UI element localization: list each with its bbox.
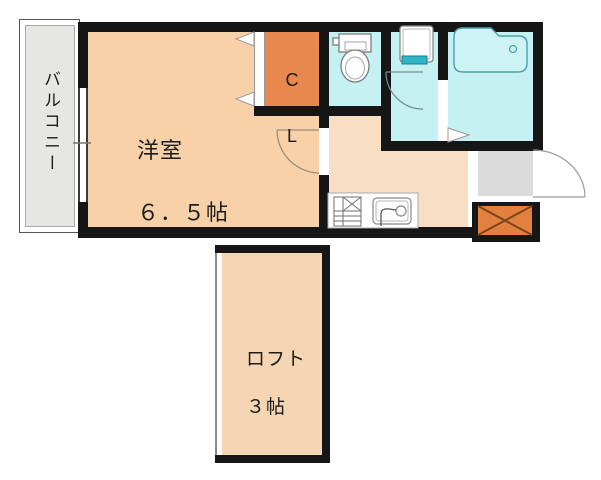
closet-label: C L bbox=[265, 38, 319, 178]
room-bathroom bbox=[448, 32, 533, 141]
balcony-label: バルコニー bbox=[38, 70, 63, 175]
bathroom-door-opening bbox=[440, 77, 448, 144]
room-kitchen-hall-lower bbox=[329, 151, 468, 227]
entrance-door-arc-icon bbox=[533, 150, 585, 197]
loft-size: ３帖 bbox=[246, 396, 306, 420]
loft-label: ロフト ３帖 bbox=[246, 324, 306, 444]
wall-toilet-washroom bbox=[381, 32, 391, 141]
room-washroom bbox=[391, 32, 438, 141]
closet-label-line2: L bbox=[265, 122, 319, 150]
loft-wall-right bbox=[322, 245, 330, 463]
wall-divider-lower bbox=[319, 175, 329, 227]
western-room-name: 洋室 bbox=[137, 135, 229, 166]
loft-name: ロフト bbox=[246, 348, 306, 372]
wall-top bbox=[78, 22, 543, 32]
entrance-step-strip bbox=[468, 151, 478, 204]
closet-folding-door bbox=[254, 32, 265, 106]
closet-label-line1: C bbox=[265, 66, 319, 94]
loft-wall-top bbox=[215, 245, 330, 253]
wall-bath-bottom bbox=[381, 141, 543, 151]
crossed-box-marker bbox=[478, 206, 532, 235]
loft-open-edge bbox=[215, 253, 222, 455]
western-room-label: 洋室 ６．５帖 bbox=[137, 104, 229, 259]
wall-right bbox=[533, 22, 543, 151]
room-entrance bbox=[478, 151, 533, 196]
floor-plan: バルコニー 洋室 ６．５帖 C L ロフト ３帖 bbox=[0, 0, 601, 480]
western-room-size: ６．５帖 bbox=[137, 197, 229, 228]
room-toilet bbox=[329, 32, 381, 106]
wall-left-upper bbox=[78, 22, 88, 88]
loft-wall-bottom bbox=[215, 455, 330, 463]
balcony-window bbox=[78, 88, 88, 202]
wall-washroom-bathroom bbox=[438, 22, 448, 80]
